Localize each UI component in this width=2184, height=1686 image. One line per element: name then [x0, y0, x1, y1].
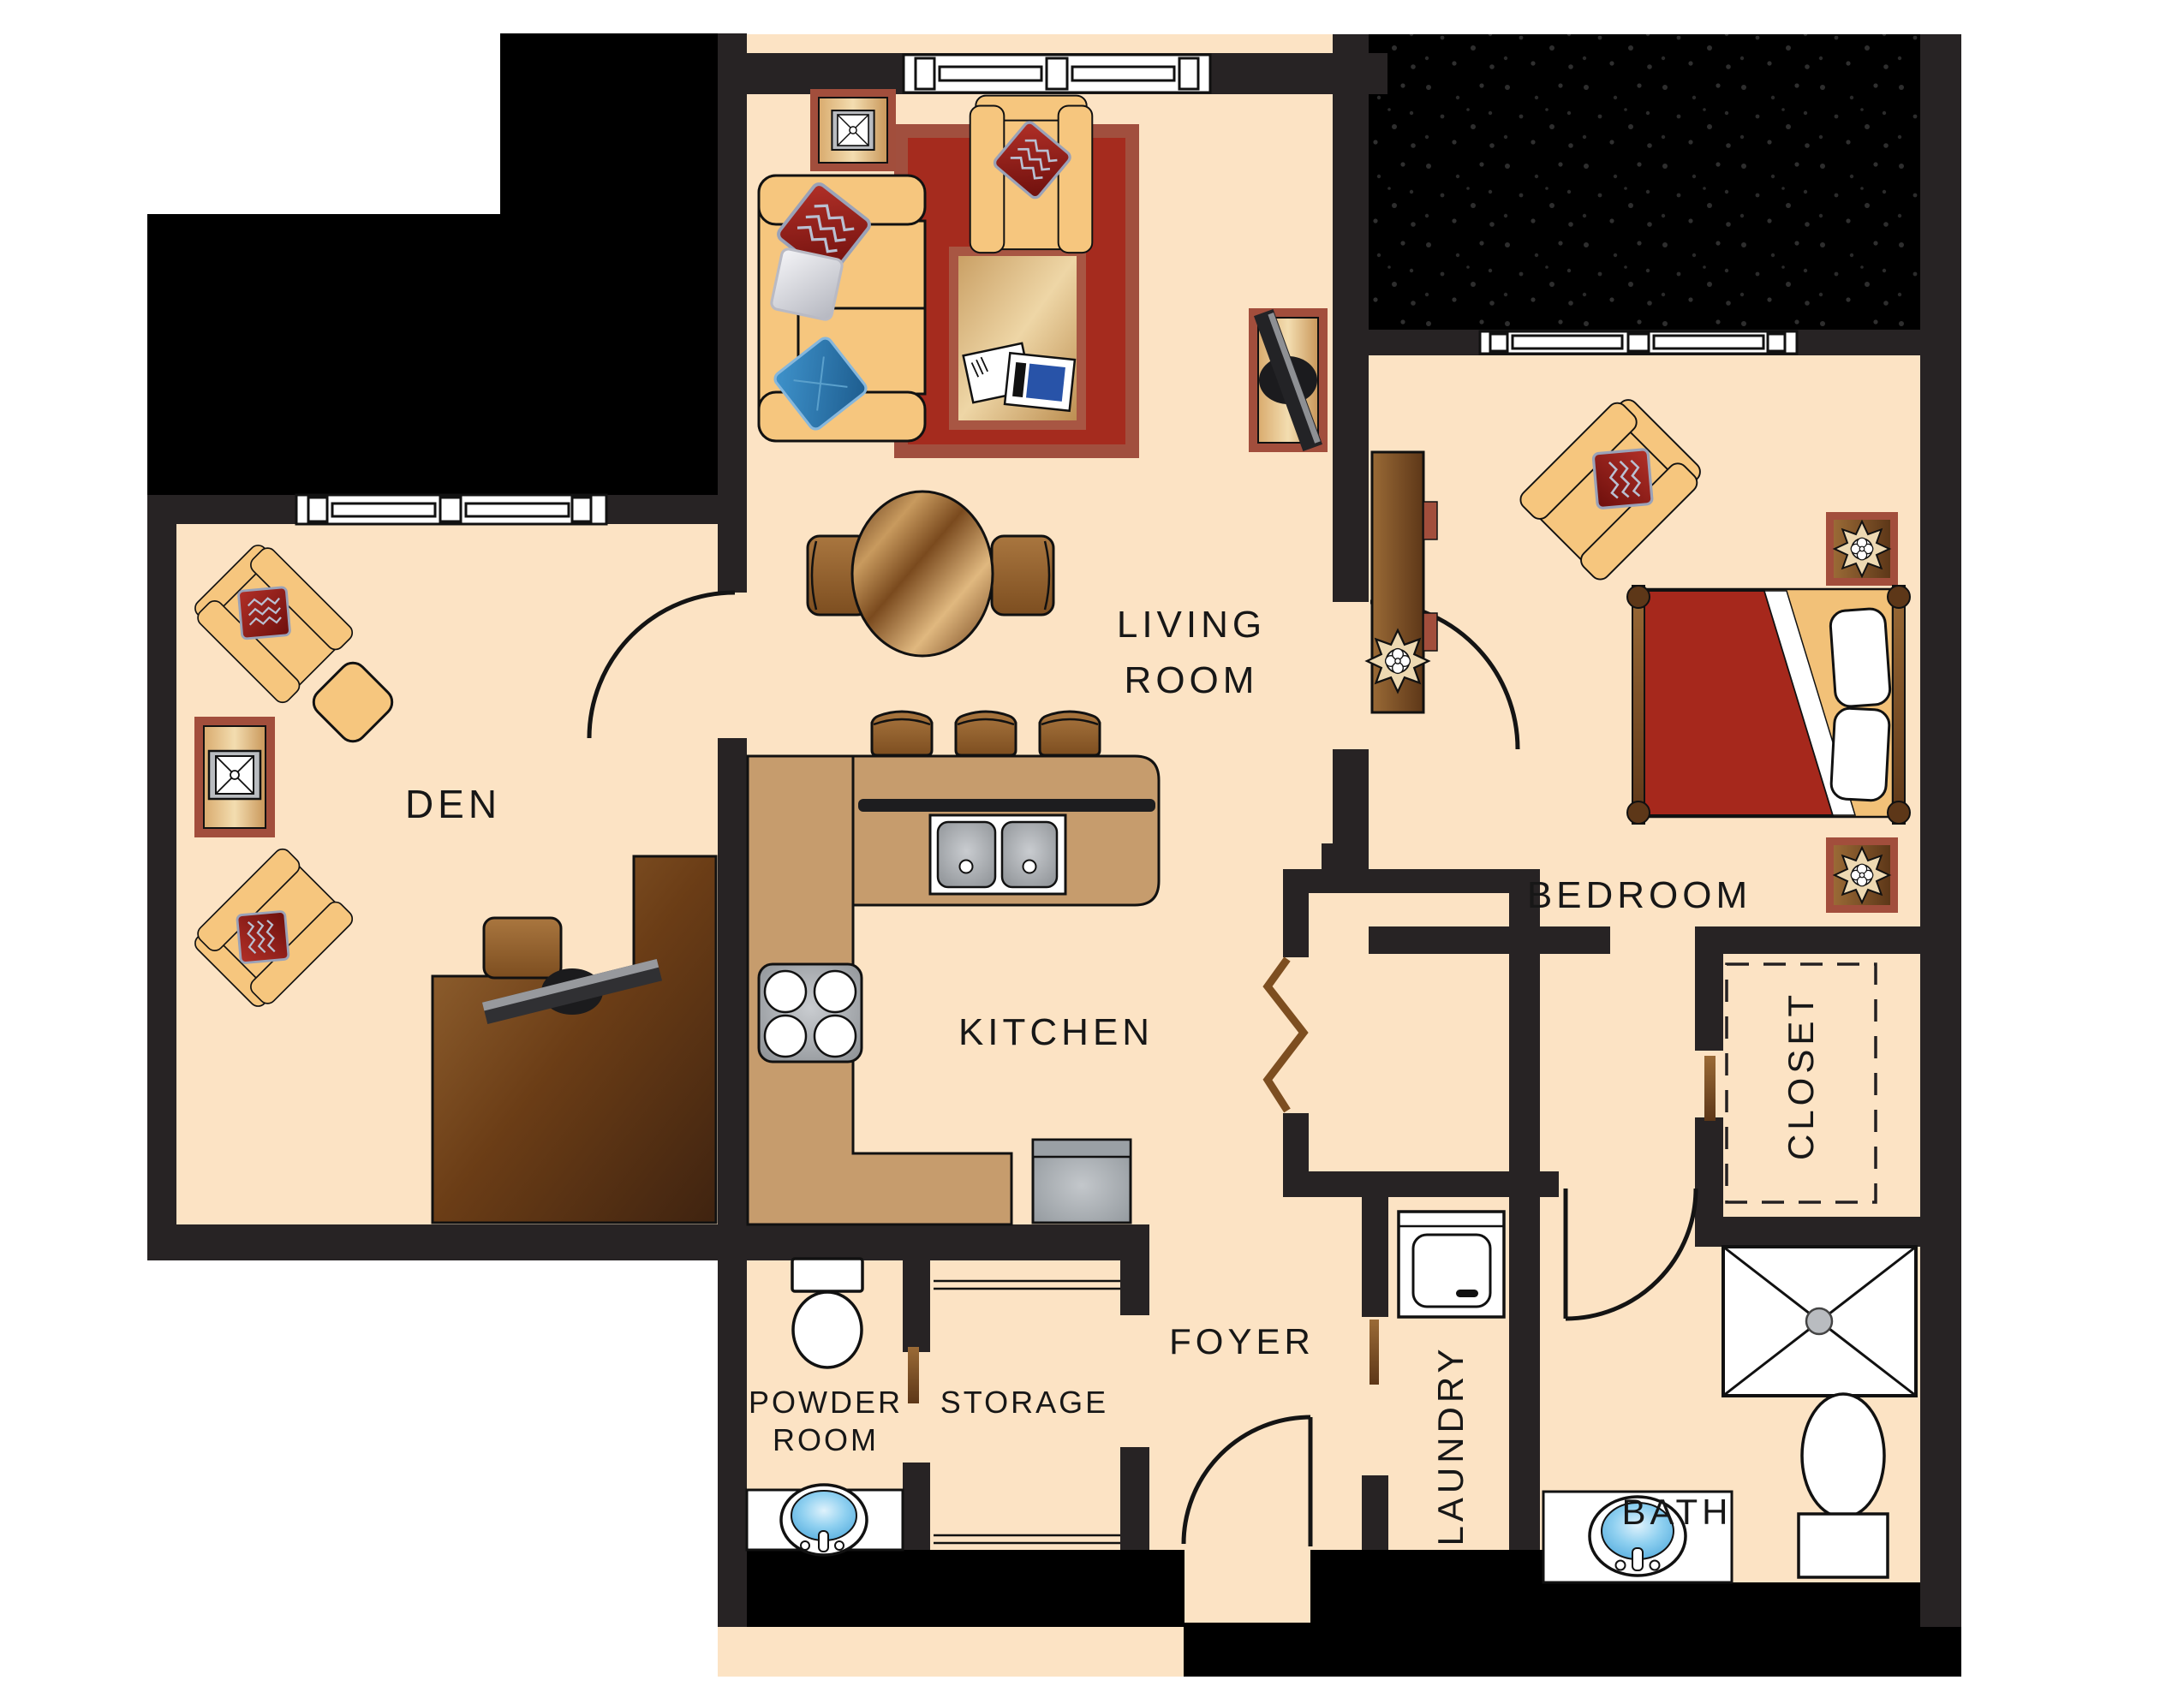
wall-segment [1120, 1447, 1149, 1550]
floor-plan-canvas: DEN LIVING ROOM BEDROOM KITCHEN FOYER PO… [0, 0, 2184, 1686]
faucet [1632, 1548, 1643, 1570]
washer [1399, 1212, 1504, 1317]
closet-door [1704, 1056, 1716, 1121]
wall-segment [1283, 869, 1535, 893]
burner [765, 971, 806, 1012]
wall-segment [1283, 869, 1309, 957]
room-label-den: DEN [405, 782, 501, 826]
wall-segment [1322, 843, 1349, 871]
bottom-wall-left [718, 1550, 1184, 1627]
room-label-storage: STORAGE [940, 1385, 1108, 1420]
toilet-tank [792, 1259, 862, 1291]
tv-console [1249, 308, 1328, 452]
bed-pillow [1829, 608, 1891, 707]
wall-segment [1333, 34, 1369, 602]
floor-plan: DEN LIVING ROOM BEDROOM KITCHEN FOYER PO… [0, 0, 2184, 1686]
wall-segment [1120, 1248, 1149, 1315]
powder-room-door [908, 1347, 919, 1403]
bed-post [1627, 586, 1650, 608]
dishwasher [1033, 1140, 1131, 1223]
den-tv-console [194, 717, 275, 837]
margin-right [1961, 0, 2184, 1686]
entry-threshold [1184, 1550, 1310, 1623]
faucet [819, 1531, 828, 1552]
bar-stool [956, 712, 1016, 755]
room-label-living-line2: ROOM [1125, 659, 1259, 701]
wall-segment [903, 1248, 930, 1352]
wall-segment [1283, 1113, 1309, 1197]
room-label-foyer: FOYER [1169, 1321, 1315, 1361]
armchair [970, 96, 1093, 253]
faucet-handle [835, 1541, 844, 1550]
desk-chair [484, 918, 561, 978]
room-label-closet: CLOSET [1781, 991, 1821, 1160]
faucet-handle [801, 1541, 809, 1550]
drawer-handle [1423, 502, 1437, 539]
room-label-living-line1: LIVING [1117, 604, 1266, 646]
exterior-block-b [147, 214, 500, 497]
patio-deck [1368, 34, 1920, 330]
wall-segment [718, 738, 747, 1627]
headboard [1893, 586, 1905, 824]
bed-post [1888, 586, 1910, 608]
nightstand [1826, 837, 1898, 913]
white-pillow [770, 247, 843, 320]
bed-post [1888, 801, 1910, 824]
margin-left [0, 0, 147, 1686]
wall-segment [1509, 869, 1540, 1550]
double-sink [930, 815, 1065, 894]
tv-icon [832, 110, 874, 150]
bed [1627, 586, 1910, 824]
nightstand [1826, 512, 1898, 586]
plant [1835, 848, 1889, 903]
drain [1023, 861, 1036, 873]
shower [1723, 1247, 1916, 1396]
den-window [296, 495, 606, 524]
laundry-door [1369, 1320, 1379, 1385]
plant [1835, 521, 1889, 576]
tv-icon [209, 751, 260, 799]
living-room-window [904, 55, 1210, 92]
burner [815, 1016, 856, 1057]
island-counter-edge [858, 799, 1155, 812]
sofa [759, 176, 925, 441]
wall-segment [903, 1463, 930, 1550]
wall-segment [147, 495, 176, 1257]
drawer-handle [1423, 613, 1437, 651]
bed-pillow [1830, 707, 1889, 801]
wall-segment [1695, 1217, 1920, 1247]
bar-stool [872, 712, 932, 755]
wall-segment [718, 33, 747, 593]
wall-segment [1695, 954, 1723, 1051]
wall-segment [1362, 1197, 1388, 1317]
faucet-handle [1650, 1561, 1660, 1570]
dining-chair [992, 536, 1053, 615]
bottom-wall-mid [1310, 1550, 1543, 1627]
wall-segment [1695, 926, 1920, 954]
room-label-kitchen: KITCHEN [958, 1011, 1154, 1053]
bedroom-window [1480, 331, 1797, 354]
footboard [1632, 586, 1644, 824]
toilet-tank [1799, 1514, 1888, 1577]
wall-segment [1362, 1475, 1388, 1550]
coffee-table [949, 247, 1086, 430]
footing-slab [1184, 1623, 1961, 1677]
wall-segment [1369, 926, 1610, 954]
washer-lid [1413, 1235, 1490, 1307]
washer-handle [1456, 1290, 1478, 1297]
faucet-handle [1616, 1561, 1626, 1570]
magazine [1005, 353, 1075, 411]
room-label-powder-line1: POWDER [749, 1385, 903, 1420]
shower-drain [1806, 1308, 1832, 1334]
burner [815, 971, 856, 1012]
bed-post [1627, 801, 1650, 824]
vanity-sink [747, 1485, 903, 1555]
wall-segment [1695, 1117, 1723, 1217]
exterior-notch-top-left [147, 0, 500, 214]
room-label-powder-line2: ROOM [773, 1422, 879, 1457]
wall-segment [147, 1224, 1149, 1260]
exterior-block-a [500, 33, 718, 497]
toilet [792, 1259, 862, 1367]
wall-segment [1283, 1171, 1559, 1197]
plant [1367, 630, 1429, 692]
drain [960, 861, 973, 873]
room-label-bath: BATH [1622, 1492, 1733, 1532]
media-console [810, 89, 896, 171]
exterior-below-den [147, 1257, 718, 1680]
toilet [1799, 1394, 1888, 1577]
stove [759, 964, 862, 1062]
bottom-wall-bath [1543, 1582, 1961, 1627]
burner [765, 1016, 806, 1057]
room-label-bedroom: BEDROOM [1527, 874, 1751, 916]
room-label-laundry: LAUNDRY [1430, 1345, 1471, 1546]
dining-table [852, 492, 993, 656]
wall-segment [1920, 34, 1961, 1627]
bar-stool [1040, 712, 1100, 755]
